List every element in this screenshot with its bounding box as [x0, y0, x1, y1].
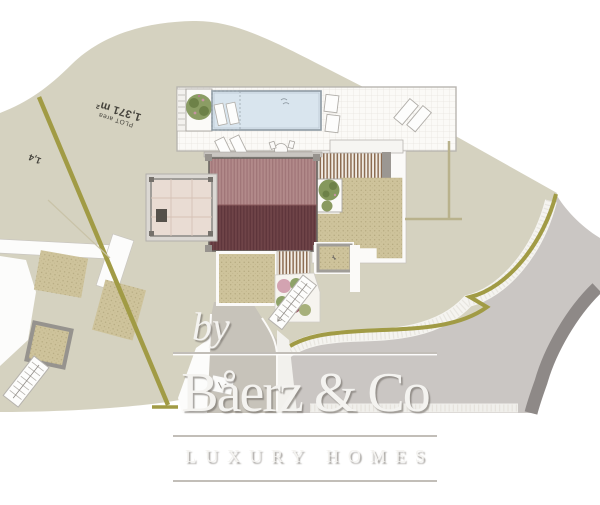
pergola	[318, 153, 384, 181]
planter-tree	[186, 94, 212, 120]
south-terrace-carpet	[219, 254, 275, 303]
grill-block	[156, 209, 167, 222]
terrace-railing	[330, 140, 403, 153]
watermark-brand: Båerz & Co	[171, 361, 439, 425]
watermark-divider-bottom	[173, 480, 437, 482]
site-plan-drawing	[0, 0, 600, 505]
swimming-pool	[212, 91, 321, 130]
site-plan-image: PLOT area 1,371 m² 1,4 by Båerz & Co LUX…	[0, 0, 600, 505]
watermark-tagline: LUXURY HOMES	[171, 446, 439, 467]
watermark-divider-middle	[173, 435, 437, 437]
villa-roof	[204, 152, 322, 252]
south-pergola	[277, 251, 310, 275]
watermark-by: by	[192, 303, 230, 350]
entrance-courtyard	[146, 174, 217, 241]
watermark-divider-top	[173, 352, 437, 354]
